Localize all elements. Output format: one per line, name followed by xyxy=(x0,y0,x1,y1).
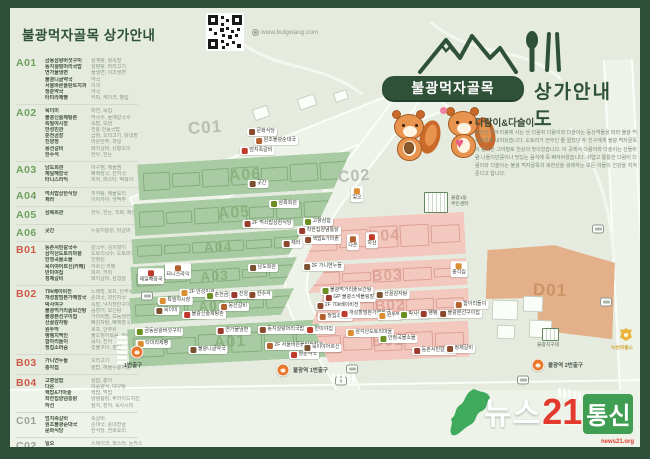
building-outline xyxy=(343,335,372,351)
section-code: A04 xyxy=(16,191,42,203)
shop-marker: 정제갈비 xyxy=(445,345,475,353)
map-canvas: 불광먹자골목 상가안내 www.bulgwang.com xyxy=(10,8,640,447)
shop-marker: 묵더미 xyxy=(154,307,179,315)
building-outline xyxy=(166,210,192,224)
shop-marker-label: 불광본선구이집 xyxy=(448,311,480,317)
shop-marker: 묵이야어르신 xyxy=(302,344,341,352)
shop-name: 하선 xyxy=(45,403,89,409)
watermark-text-news: 뉴스 xyxy=(484,389,541,433)
directory-row: 곳간누룽지통닭, 닭갈비 xyxy=(45,228,138,234)
crosswalk-stripe xyxy=(117,351,127,354)
shop-marker-label: 일오 xyxy=(352,195,361,201)
crosswalk-stripe xyxy=(117,346,127,349)
globe-icon xyxy=(252,29,259,36)
shop-marker-label: 불광먹거리솥브간탕 xyxy=(330,288,371,294)
section-code: C02 xyxy=(16,441,42,447)
mascot-squirrel-1 xyxy=(384,112,434,166)
shop-marker-label: 제일해장국 xyxy=(139,277,162,283)
crosswalk-stripe xyxy=(337,374,340,383)
food-icon xyxy=(267,343,273,349)
shop-marker: 반미야집 xyxy=(305,326,335,334)
shop-marker-label: 타니스라익 xyxy=(166,272,189,278)
shop-marker-label: 곳간 xyxy=(257,181,266,187)
shop-marker: 하선 xyxy=(366,232,378,248)
shop-marker: 청춘약국 xyxy=(289,351,319,359)
bus-icon xyxy=(600,298,612,307)
bus-icon xyxy=(592,225,604,234)
shop-marker-label: 고향삼합 xyxy=(313,219,331,225)
directory-row: 정제갈비돼지갈비, 삼겹살 xyxy=(45,276,138,282)
directory-section-A01: A01금동삼왕버섯구이삼계탕, 왕족발동지설렁머리국밥설렁탕, 머리고기연가물냉… xyxy=(16,55,138,101)
food-icon xyxy=(440,311,446,317)
building-outline xyxy=(400,224,430,247)
shop-marker: 다온 xyxy=(347,234,359,250)
shop-marker: GP 불광스낵볼링장 xyxy=(324,294,376,302)
shop-marker-label: 금동삼왕버섯구이 xyxy=(144,329,181,335)
shop-marker-label: 몽선갈비 xyxy=(229,304,247,310)
police-substation-building-icon xyxy=(542,328,559,341)
shop-marker-label: GP 불광스낵볼링장 xyxy=(333,295,374,301)
block-label: A03 xyxy=(200,266,230,284)
directory-section-A05: A05삼록회관한우, 한돈, 직화, 해산물 xyxy=(16,206,138,221)
food-icon xyxy=(249,292,255,298)
food-icon xyxy=(160,298,166,304)
shop-marker-label: 청춘약국 xyxy=(299,352,317,358)
building-outline xyxy=(246,239,272,249)
building-outline xyxy=(342,271,371,282)
shop-marker-label: 제라 xyxy=(291,241,300,247)
building-outline xyxy=(289,163,317,183)
shop-marker-label: 연가물냉면 xyxy=(225,328,248,334)
shop-marker: 연가물냉면 xyxy=(216,327,251,335)
directory-section-A02: A02묵더미파전, 묵집불광신술제탕촌막국수, 들깨칼국수특밀야시장족발, 보쌈… xyxy=(16,104,138,158)
food-icon xyxy=(305,219,311,225)
shop-description: 한우, 한돈, 직화, 해산물 xyxy=(91,210,141,216)
crosswalk-stripe xyxy=(352,374,355,383)
shop-marker: 금동삼왕버섯구이 xyxy=(135,328,183,336)
food-icon xyxy=(317,303,323,309)
section-items: 삼록회관한우, 한돈, 직화, 해산물 xyxy=(45,210,141,221)
food-icon xyxy=(350,236,356,242)
shop-marker-label: 산꿀감자탕 xyxy=(384,292,407,298)
section-code: A05 xyxy=(16,210,42,221)
shop-marker: 함아리들이 xyxy=(454,301,489,309)
logo-suffix: 상가안내도 xyxy=(534,77,622,131)
street-label-C01: C01 xyxy=(187,117,222,139)
shop-marker: 불광신술제탕촌 xyxy=(182,311,226,319)
shop-marker: 문화식당 xyxy=(247,128,277,136)
shop-marker-label: 반미야집 xyxy=(315,327,333,333)
community-center-label: 불광1동 주민센터 xyxy=(451,196,469,208)
acorn-icon xyxy=(404,142,414,154)
bus-icon xyxy=(141,292,153,301)
shop-marker-label: 특밀야시장 xyxy=(167,298,190,304)
shop-description: 이자카야, 생맥주 xyxy=(91,197,138,203)
shop-name: 제라 xyxy=(45,197,89,203)
shop-marker: 착한집양념통닭 xyxy=(297,227,341,235)
building-outline xyxy=(143,172,171,192)
directory-section-B01: B01둥촌서민칼국수칼국수, 김치말이삼각산도토리마을도토리국수, 도토리묵안정… xyxy=(16,241,138,282)
flower-icon xyxy=(440,107,447,114)
shop-name: 삼록회관 xyxy=(45,210,89,216)
shop-name: 곳간 xyxy=(45,228,89,234)
section-code: B01 xyxy=(16,245,42,282)
shop-description: 누룽지통닭, 닭갈비 xyxy=(91,228,138,234)
food-icon xyxy=(299,228,305,234)
directory-row: 타니스라익피자, 파스타, 떡볶이 xyxy=(45,177,138,183)
food-icon xyxy=(291,352,297,358)
shop-marker: 동지설렁머리국밥 xyxy=(258,326,306,334)
directory-section-B04: B04고향삼합삼합, 홍어다온대중양식, 대구탕핵밥&가마솥핵밥, 먹밥착한집양… xyxy=(16,374,138,409)
shop-description: 커피, 케이크, 빵집 xyxy=(91,95,138,101)
directory-section-A06: A06곳간누룽지통닭, 닭갈비 xyxy=(16,224,138,239)
food-icon xyxy=(377,292,383,298)
food-icon xyxy=(137,329,143,335)
shop-marker-label: 착한집양념통닭 xyxy=(307,228,339,234)
building-footprint xyxy=(497,325,515,340)
section-code: A06 xyxy=(16,228,42,239)
directory-section-C02: C02일오스테이크, 파스타, 돈카스 xyxy=(16,437,138,447)
crosswalk-stripe xyxy=(117,341,127,344)
food-icon xyxy=(380,336,386,342)
food-icon xyxy=(421,311,427,317)
mountain-utensils-icon xyxy=(416,30,566,76)
shop-marker: 일오 xyxy=(351,186,363,202)
building-footprint xyxy=(523,296,544,313)
crosswalk-stripe xyxy=(347,374,350,383)
food-icon xyxy=(250,265,256,271)
shop-marker: 제일해장국 xyxy=(138,268,164,284)
shop-name: 한수석 xyxy=(45,152,89,158)
food-icon xyxy=(348,330,354,336)
crosswalk-stripe xyxy=(117,356,127,359)
subway-exit-label: 1번출구 xyxy=(124,361,142,369)
bus-icon xyxy=(346,365,358,374)
shop-marker: 불광니글약국 xyxy=(188,346,227,354)
qr-code xyxy=(206,13,244,51)
section-items: 곳간누룽지통닭, 닭갈비 xyxy=(45,228,138,239)
shop-description: 한식당, 전복요리 xyxy=(91,428,138,434)
section-code: B04 xyxy=(16,378,42,409)
shop-marker: 몽선갈비 xyxy=(219,303,249,311)
brand-logo: 불광먹자골목 상가안내도 xyxy=(382,30,622,110)
section-code: A02 xyxy=(16,108,42,158)
food-icon xyxy=(156,308,162,314)
section-code: A01 xyxy=(16,58,42,101)
food-icon xyxy=(242,148,248,154)
shop-marker-label: 남도회관 xyxy=(258,265,276,271)
shop-marker-label: 묵더미 xyxy=(164,308,178,314)
food-icon xyxy=(221,304,227,310)
subway-exit-label: 불광역 1번출구 xyxy=(293,366,328,374)
shop-marker: 총각집 xyxy=(451,261,468,277)
building-outline xyxy=(164,244,190,254)
shop-marker-label: 총각집 xyxy=(452,270,466,276)
shop-marker-label: 삼록회관 xyxy=(279,201,297,207)
shop-marker: 삼록회관 xyxy=(269,200,299,208)
shop-marker: 불광본선구이집 xyxy=(438,310,482,318)
section-items: 일오스테이크, 파스타, 돈카스 xyxy=(45,441,143,447)
shop-name: 총각집 xyxy=(45,365,89,371)
food-icon xyxy=(379,313,385,319)
food-icon xyxy=(231,292,237,298)
directory-row: 제라이자카야, 생맥주 xyxy=(45,197,138,203)
building-outline xyxy=(139,211,165,228)
directory-row: 하선참치, 장어, 육사시미 xyxy=(45,403,140,409)
food-icon xyxy=(456,263,462,269)
shop-marker: 핵밥&가마솥 xyxy=(303,236,341,244)
shop-marker: 한수석 xyxy=(247,291,272,299)
shop-marker: 곳간 xyxy=(248,180,269,188)
directory-section-A04: A04먹쇠밥상한식당추어탕, 해물요리제라이자카야, 생맥주 xyxy=(16,187,138,203)
food-icon xyxy=(271,201,277,207)
shop-marker-label: 문화식당 xyxy=(257,129,275,135)
food-icon xyxy=(175,265,181,271)
watermark-subtext: news21.org xyxy=(601,439,634,445)
directory-section-A03: A03남도회관아구찜, 해물찜제일해장국뼈해장국, 선지국타니스라익피자, 파스… xyxy=(16,161,138,184)
food-icon xyxy=(447,346,453,352)
shop-marker: 특밀야시장 xyxy=(158,297,193,305)
heart-icon: ♥ xyxy=(455,136,464,151)
food-icon xyxy=(304,345,310,351)
mascot-description: 북한산 족두리봉에 사는 산 다람쥐 다람이와 다슬이는 등산객들을 따라 불광… xyxy=(475,129,637,179)
shop-marker: 안정곡물소믈 xyxy=(378,335,417,343)
subway-exit-icon xyxy=(131,346,144,359)
sidebar-directory: A01금동삼왕버섯구이삼계탕, 왕족발동지설렁머리국밥설렁탕, 머리고기연가물냉… xyxy=(16,55,138,447)
food-icon xyxy=(190,347,196,353)
shop-name: 타미라제빵 xyxy=(45,95,89,101)
shop-marker-label: 2F 먹쇠밥상한식당 xyxy=(252,221,291,227)
crosswalk-stripe xyxy=(332,374,335,383)
food-icon xyxy=(369,234,375,240)
street-label-C02: C02 xyxy=(337,167,371,187)
food-icon xyxy=(305,237,311,243)
crosswalk-stripe xyxy=(342,374,345,383)
building-outline xyxy=(201,168,229,188)
page-frame: 불광먹자골목 상가안내 www.bulgwang.com xyxy=(0,0,650,459)
building-outline xyxy=(431,224,461,243)
building-outline xyxy=(403,267,432,281)
food-icon xyxy=(260,327,266,333)
section-items: 엄지족갈비족갈비원조불광순대국순대국, 순대전골문화식당한식당, 전복요리 xyxy=(45,416,138,435)
shop-marker-label: 2F 가니연누들 xyxy=(312,264,342,270)
shop-marker-label: 동지설렁머리국밥 xyxy=(267,327,304,333)
block-label: B03 xyxy=(371,266,402,285)
food-icon xyxy=(181,290,187,296)
shop-marker-label: 정제갈비 xyxy=(455,346,473,352)
food-icon xyxy=(218,328,224,334)
shop-description: 피자, 파스타, 떡볶이 xyxy=(91,177,138,183)
watermark-text-tongsin: 통신 xyxy=(583,394,633,434)
directory-row: 문화식당한식당, 전복요리 xyxy=(45,428,138,434)
shop-description: 참치, 장어, 육사시미 xyxy=(91,403,140,409)
food-icon xyxy=(307,327,313,333)
food-icon xyxy=(401,312,407,318)
shop-marker-label: 불광신술제탕촌 xyxy=(192,312,224,318)
website-url: www.bulgwang.com xyxy=(261,29,318,36)
shop-marker-label: 엄지족갈비 xyxy=(249,148,272,154)
logo-badge: 불광먹자골목 xyxy=(382,76,524,100)
shop-name: 일오 xyxy=(45,441,89,447)
shop-marker: 2F 70k베이비전 xyxy=(315,302,360,310)
website-row: www.bulgwang.com xyxy=(252,29,318,36)
shop-description: 스테이크, 파스타, 돈카스 xyxy=(91,441,143,447)
shop-marker-label: 한수석 xyxy=(257,292,271,298)
building-outline xyxy=(137,244,163,256)
food-icon xyxy=(354,188,360,194)
food-icon xyxy=(342,311,348,317)
community-center-building-icon xyxy=(424,192,448,213)
section-items: 둥촌서민칼국수칼국수, 김치말이삼각산도토리마을도토리국수, 도토리묵안정곡물소… xyxy=(45,245,138,282)
shop-name: 정제갈비 xyxy=(45,276,89,282)
section-items: 묵더미파전, 묵집불광신술제탕촌막국수, 들깨칼국수특밀야시장족발, 보쌈안성민… xyxy=(45,108,138,158)
shop-marker-label: 핵밥&가마솥 xyxy=(313,237,339,243)
directory-section-C01: C01엄지족갈비족갈비원조불광순대국순대국, 순대전골문화식당한식당, 전복요리 xyxy=(16,412,138,435)
food-icon xyxy=(304,264,310,270)
food-icon xyxy=(284,241,290,247)
shop-marker: 고향삼합 xyxy=(303,218,333,226)
shop-marker: 남도회관 xyxy=(248,264,278,272)
shop-marker: 2F 먹쇠밥상한식당 xyxy=(243,220,294,228)
building-outline xyxy=(172,171,200,187)
section-code: B02 xyxy=(16,289,42,351)
shop-marker: 엄지족갈비 xyxy=(240,147,275,155)
block-label: A04 xyxy=(203,237,233,255)
shop-marker: 2F 가니연누들 xyxy=(302,263,344,271)
watermark-text-21: 21 xyxy=(542,391,582,433)
news21-watermark: 뉴스 21 통신 news21.org xyxy=(458,387,638,441)
food-icon xyxy=(326,295,332,301)
shop-name: 타니스라익 xyxy=(45,177,89,183)
shop-marker-label: 함아리들이 xyxy=(463,302,486,308)
food-icon xyxy=(207,293,213,299)
police-box-label: 녹번파출소 xyxy=(611,344,633,351)
food-icon xyxy=(184,312,190,318)
food-icon xyxy=(148,270,154,276)
food-icon xyxy=(245,221,251,227)
food-icon xyxy=(250,181,256,187)
section-code: B03 xyxy=(16,358,42,370)
shop-description: 한우, 한돈 xyxy=(91,152,138,158)
section-items: 고향삼합삼합, 홍어다온대중양식, 대구탕핵밥&가마솥핵밥, 먹밥착한집양념통닭… xyxy=(45,378,140,409)
shop-marker-label: 안정곡물소믈 xyxy=(388,336,416,342)
food-icon xyxy=(456,302,462,308)
section-items: 남도회관아구찜, 해물찜제일해장국뼈해장국, 선지국타니스라익피자, 파스타, … xyxy=(45,165,138,184)
shop-marker: 산꿀감자탕 xyxy=(375,291,410,299)
page-title: 불광먹자골목 상가안내 xyxy=(22,24,155,44)
shop-marker: 원조불광순대국 xyxy=(254,137,298,145)
subway-exit-icon xyxy=(532,359,545,372)
directory-row: 삼록회관한우, 한돈, 직화, 해산물 xyxy=(45,210,141,216)
shop-name: 문화식당 xyxy=(45,428,89,434)
shop-marker-label: 다온 xyxy=(348,243,357,249)
shop-name: 정집소머슴 xyxy=(45,345,89,351)
subway-exit-label: 불광역 2번출구 xyxy=(548,361,583,369)
building-footprint xyxy=(492,300,519,321)
food-icon xyxy=(320,314,326,320)
shop-marker: 타니스라익 xyxy=(165,263,191,279)
building-outline xyxy=(193,207,219,224)
shop-marker-label: 묵이야어르신 xyxy=(312,345,340,351)
section-items: 먹쇠밥상한식당추어탕, 해물요리제라이자카야, 생맥주 xyxy=(45,191,138,203)
police-substation-label: 불광지구대 xyxy=(537,343,559,349)
shop-marker: 제라 xyxy=(282,240,303,248)
food-icon xyxy=(249,129,255,135)
shop-marker-label: 하선 xyxy=(367,241,376,247)
mascot-title: 다람이&다슬이 xyxy=(475,115,534,129)
crosswalk-stripe xyxy=(117,336,127,339)
subway-exit-icon xyxy=(277,364,290,377)
food-icon xyxy=(414,348,420,354)
bus-icon xyxy=(517,376,529,385)
section-code: C01 xyxy=(16,416,42,435)
section-code: A03 xyxy=(16,165,42,184)
section-items: 금동삼왕버섯구이삼계탕, 왕족발동지설렁머리국밥설렁탕, 머리고기연가물냉면물냉… xyxy=(45,58,138,101)
shop-marker-label: 타미라제빵 xyxy=(145,341,168,347)
directory-row: 한수석한우, 한돈 xyxy=(45,152,138,158)
directory-row: 타미라제빵커피, 케이크, 빵집 xyxy=(45,95,138,101)
shop-marker-label: 원조불광순대국 xyxy=(264,138,296,144)
shop-marker-label: 불광니글약국 xyxy=(198,347,226,353)
directory-row: 일오스테이크, 파스타, 돈카스 xyxy=(45,441,143,447)
food-icon xyxy=(256,138,262,144)
shop-marker-label: 2F 70k베이비전 xyxy=(325,303,359,309)
